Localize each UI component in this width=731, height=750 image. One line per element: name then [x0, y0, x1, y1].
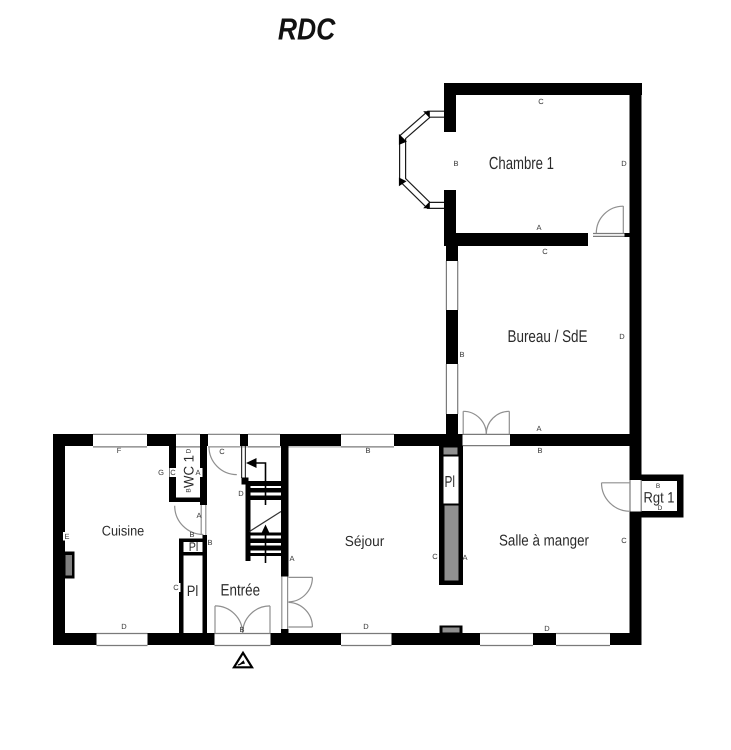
svg-text:A: A	[196, 511, 201, 520]
svg-text:F: F	[117, 446, 122, 455]
svg-text:D: D	[621, 159, 627, 168]
svg-text:Pl: Pl	[187, 583, 199, 600]
svg-text:C: C	[219, 447, 225, 456]
svg-text:C: C	[432, 552, 438, 561]
svg-text:D: D	[363, 622, 369, 631]
svg-text:B: B	[189, 530, 194, 539]
svg-text:D: D	[619, 332, 625, 341]
svg-text:B: B	[453, 159, 458, 168]
svg-text:C: C	[170, 468, 176, 477]
svg-text:Séjour: Séjour	[345, 534, 385, 550]
svg-text:B: B	[207, 538, 212, 547]
svg-text:E: E	[64, 532, 69, 541]
svg-text:A: A	[536, 223, 541, 232]
svg-text:B: B	[656, 483, 660, 490]
svg-text:A: A	[536, 424, 541, 433]
svg-text:Pl: Pl	[189, 540, 199, 554]
svg-text:Salle à manger: Salle à manger	[499, 533, 589, 550]
svg-text:B: B	[365, 446, 370, 455]
svg-text:C: C	[538, 97, 544, 106]
svg-text:A: A	[289, 554, 294, 563]
svg-text:B: B	[186, 488, 193, 492]
svg-text:C: C	[173, 583, 179, 592]
svg-text:Rgt 1: Rgt 1	[644, 490, 675, 507]
svg-text:Bureau / SdE: Bureau / SdE	[508, 327, 588, 346]
svg-text:D: D	[238, 489, 244, 498]
svg-text:A: A	[462, 553, 467, 562]
svg-text:Cuisine: Cuisine	[102, 523, 145, 539]
svg-text:D: D	[544, 624, 550, 633]
svg-text:D: D	[121, 622, 127, 631]
svg-text:RDC: RDC	[278, 13, 336, 47]
svg-text:C: C	[621, 536, 627, 545]
svg-text:D: D	[658, 505, 663, 512]
svg-text:G: G	[158, 468, 164, 477]
svg-text:D: D	[186, 448, 193, 453]
svg-text:Entrée: Entrée	[221, 582, 261, 600]
svg-text:B: B	[239, 625, 244, 634]
svg-text:B: B	[459, 350, 464, 359]
svg-text:B: B	[537, 446, 542, 455]
svg-text:Chambre 1: Chambre 1	[489, 153, 554, 173]
svg-text:C: C	[542, 247, 548, 256]
svg-text:Pl: Pl	[444, 474, 455, 491]
svg-text:A: A	[195, 468, 200, 477]
